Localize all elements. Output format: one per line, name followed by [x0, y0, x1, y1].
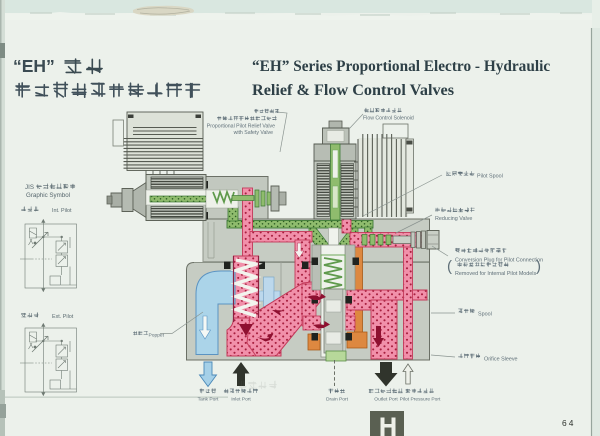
svg-text:JIS: JIS [25, 184, 34, 191]
svg-text:Proportional Pilot Relief Valv: Proportional Pilot Relief Valve [207, 124, 275, 130]
svg-text:“EH” Series Proportional Elect: “EH” Series Proportional Electro - Hydra… [252, 58, 550, 75]
svg-text:): ) [536, 258, 541, 275]
svg-text:with Safety Valve: with Safety Valve [234, 130, 274, 136]
svg-text:Spool: Spool [478, 312, 492, 318]
svg-text:Inlet Port: Inlet Port [231, 397, 251, 403]
svg-text:Graphic Symbol: Graphic Symbol [26, 192, 70, 199]
svg-text:6 4: 6 4 [562, 418, 574, 428]
svg-text:“EH”: “EH” [13, 56, 55, 76]
svg-text:Tank Port: Tank Port [198, 397, 219, 403]
svg-text:Poppet: Poppet [149, 333, 165, 339]
svg-text:Relief & Flow Control Valves: Relief & Flow Control Valves [252, 81, 454, 99]
svg-text:Removed for Internal Pilot Mod: Removed for Internal Pilot Models [455, 271, 537, 277]
svg-text:Pilot Spool: Pilot Spool [477, 174, 503, 180]
svg-text:Int. Pilot: Int. Pilot [52, 208, 72, 214]
svg-text:Flow Control Solenoid: Flow Control Solenoid [363, 116, 414, 122]
svg-text:Outlet Port: Outlet Port [374, 397, 398, 403]
svg-text:Orifice Sleeve: Orifice Sleeve [484, 357, 518, 363]
svg-text:Pilot Pressure Port: Pilot Pressure Port [400, 397, 441, 403]
svg-text:(: ( [447, 258, 452, 275]
svg-text:Reducing Valve: Reducing Valve [435, 216, 472, 222]
svg-text:Ext. Pilot: Ext. Pilot [52, 314, 74, 320]
svg-text:Drain Port: Drain Port [326, 397, 349, 403]
